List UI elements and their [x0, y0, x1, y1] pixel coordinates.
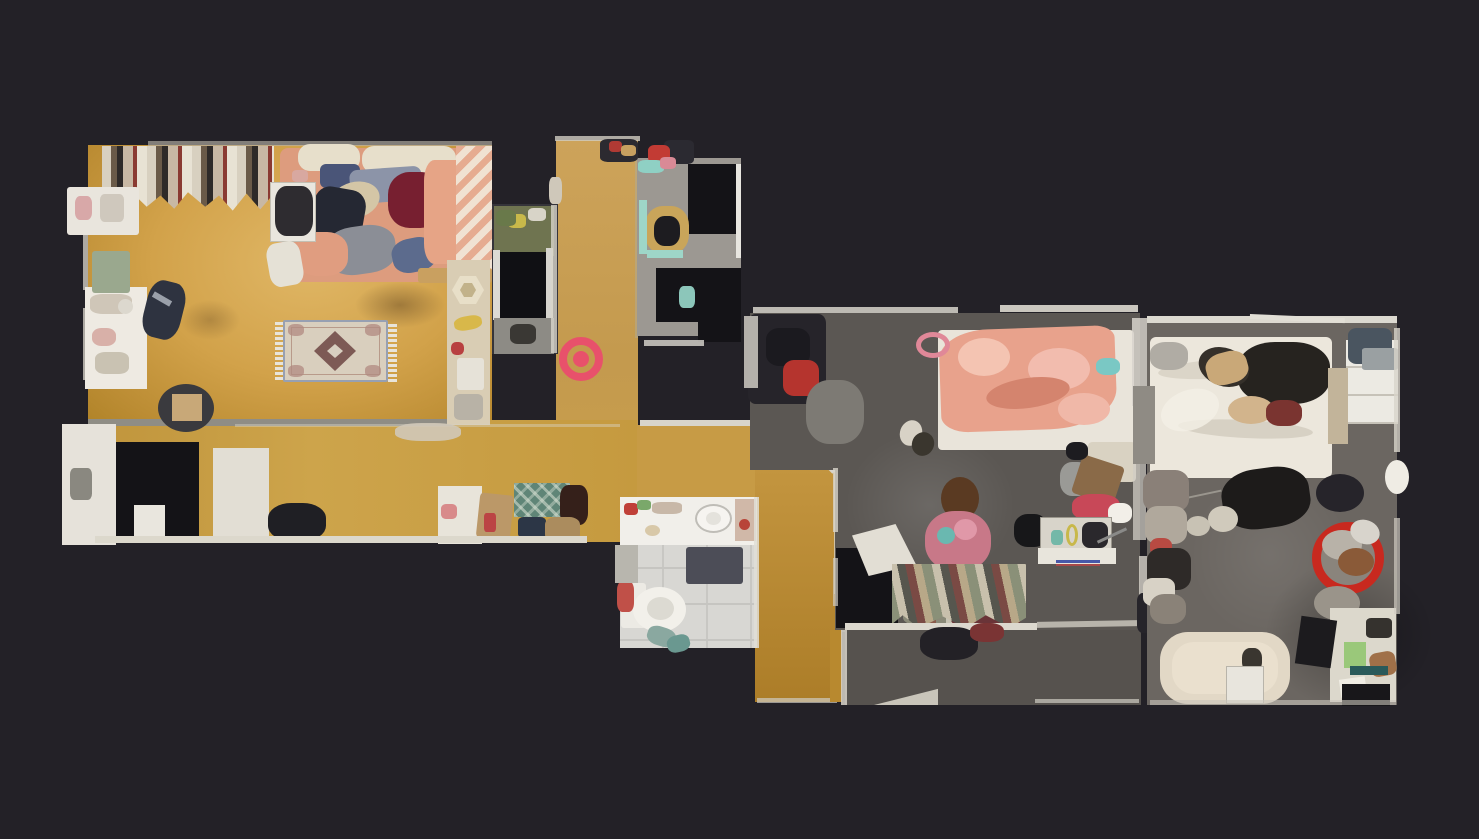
right-nightstand — [1226, 666, 1264, 704]
right-floor-dark-clothes-b — [1316, 474, 1364, 512]
bathroom-sink-basin — [706, 512, 721, 525]
vanity-clutter — [652, 502, 682, 514]
right-desk-teal-sliver — [1350, 666, 1388, 675]
right-wall-lamp — [1385, 460, 1409, 494]
bath-wall-right — [754, 497, 759, 648]
bath-left-clutter — [615, 545, 638, 583]
hall-clothes-tan — [621, 145, 636, 156]
office-teal-trim-left — [639, 200, 647, 254]
right-floor-white-item-a — [1208, 506, 1238, 532]
corridor-tan-red-streak — [484, 513, 496, 532]
wall-right-bedroom-bottom — [1150, 700, 1396, 705]
toilet-seat — [647, 597, 674, 620]
wall-middle-left-b — [833, 558, 838, 606]
person-top-teal-patch — [937, 527, 955, 544]
middle-band-red-line — [1056, 564, 1100, 566]
duvet-highlight-a — [958, 338, 1010, 376]
duvet-highlight-c — [1058, 393, 1110, 425]
office-chair-cushion — [654, 216, 680, 246]
middle-band-blue-line — [1056, 560, 1100, 563]
wall-middle-top-b — [1000, 305, 1138, 312]
wall-vcorridor-bottom — [757, 698, 837, 703]
nightstand-clothes — [275, 186, 313, 236]
wall-right-bedroom-east-a — [1394, 328, 1400, 452]
right-bed-maroon-item — [1266, 400, 1302, 426]
rug-fringe-left — [275, 322, 283, 380]
right-desk-laptop — [1295, 616, 1337, 669]
closet-item-green — [496, 210, 516, 226]
wall-hall-left — [551, 205, 557, 353]
office-teal-item — [679, 286, 695, 308]
rug-corner-motif-se — [365, 365, 381, 377]
floorplan-viewer — [0, 0, 1479, 839]
corridor-wall-bottom — [95, 536, 587, 543]
hall-bag-left — [549, 177, 562, 204]
right-bed-dark-clothes-a — [1238, 342, 1330, 404]
wall-strip-bottom — [1035, 699, 1139, 703]
person-top-pink-patch — [954, 519, 977, 540]
wall-middle-left-a — [833, 468, 838, 532]
closet-item-white — [528, 208, 546, 221]
corridor-item-navy — [518, 517, 546, 538]
middle-clothes-rack — [892, 564, 1026, 628]
shelf-gray-item — [454, 394, 483, 420]
office-scan-hole-c — [698, 308, 741, 342]
right-headboard — [1133, 386, 1155, 464]
vanity-right-red — [739, 519, 750, 530]
rug-corner-motif-nw — [288, 324, 304, 336]
right-bed-gray-pillow — [1150, 342, 1188, 370]
pouf-box — [172, 394, 202, 421]
shelf-top-left-pink-item — [75, 196, 92, 220]
rug-corner-motif-ne — [365, 324, 381, 336]
middle-nw-gray-pile — [806, 380, 864, 444]
corridor-box-pink-accent — [441, 504, 457, 519]
corridor-white-box — [134, 505, 165, 538]
floorplan-stage[interactable] — [0, 0, 1479, 839]
middle-nw-shelf-edge — [744, 316, 758, 388]
shelf-left-green — [92, 251, 130, 293]
shelf-top-left-item — [100, 194, 124, 222]
bath-mat — [686, 547, 743, 584]
office-wall-right — [736, 164, 741, 258]
corridor-shelf-strip — [213, 448, 269, 538]
middle-east-dark-item — [1066, 442, 1088, 460]
nightstand-pink-item — [292, 170, 308, 182]
basket-clothes-b — [1338, 548, 1374, 576]
desk-plate — [118, 299, 133, 314]
floor-corridor-vertical[interactable] — [755, 470, 837, 702]
office-wall-bottom — [644, 340, 704, 346]
shelf-white-item — [457, 358, 484, 390]
right-floor-white-item-b — [1186, 516, 1210, 536]
organizer-dark-item — [1082, 522, 1108, 548]
wall-right-bedroom-east-b — [1394, 518, 1400, 614]
closet-bottom-dark — [510, 324, 536, 344]
vanity-green-item — [637, 500, 651, 510]
desk-clutter-pink — [92, 328, 116, 346]
office-teal-trim-bottom — [647, 250, 683, 258]
closet-strip-left — [493, 250, 500, 320]
middle-bed-teal-item — [1096, 358, 1120, 375]
strip-red-item — [970, 623, 1004, 642]
corridor-clutter-west-dark — [70, 468, 92, 500]
rug-fringe-right — [388, 324, 397, 382]
shelf-red-item — [451, 342, 464, 355]
camera-waypoint-marker-dot[interactable] — [573, 351, 589, 367]
corridor-clutter-topline — [395, 423, 461, 441]
vanity-red-item — [624, 503, 638, 515]
right-west-clutter-c — [1150, 594, 1186, 624]
middle-bed-pink-loop — [916, 332, 950, 358]
wall-living-left-a — [83, 228, 88, 290]
office-scan-hole-a — [688, 164, 741, 234]
office-clothes-pink — [660, 157, 676, 169]
vanity-soap-dish — [645, 525, 660, 536]
wall-middle-top-a — [753, 307, 958, 313]
rug-corner-motif-sw — [288, 365, 304, 377]
floor-shadow-chair — [180, 300, 240, 340]
organizer-teal-item — [1051, 530, 1063, 545]
right-dresser-gray-item — [1362, 348, 1398, 370]
desk-clutter-b — [95, 352, 129, 374]
right-dresser-side-clutter — [1328, 368, 1348, 444]
wall-strip-left — [841, 630, 847, 705]
closet-piano — [497, 252, 553, 318]
organizer-yellow-loop — [1066, 524, 1078, 546]
bath-red-item — [617, 581, 634, 612]
right-desk-green-item — [1344, 642, 1366, 668]
right-desk-dark-item — [1366, 618, 1392, 638]
